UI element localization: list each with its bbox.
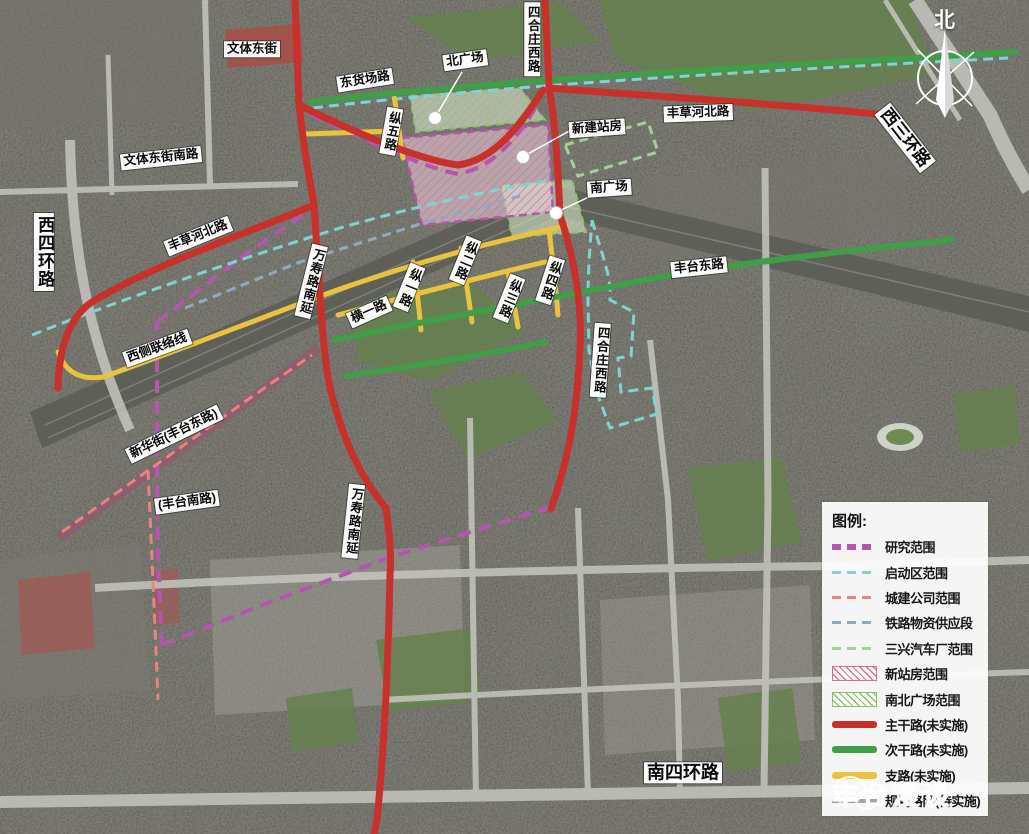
legend-item-label: 次干路(未实施) [885,740,968,759]
north-label: 北 [934,4,955,34]
legend-title: 图例: [832,510,979,531]
legend-item: 南北广场范围 [832,686,979,711]
legend-item: 三兴汽车厂范围 [832,636,979,661]
planning-map: 文体东街文体东街南路东货场路北广场四合庄西路新建站房南广场丰草河北路西三环路西四… [0,0,1029,834]
legend-panel: 图例: 研究范围启动区范围城建公司范围铁路物资供应段三兴汽车厂范围新站房范围南北… [822,502,988,816]
legend-swatch [832,721,877,728]
legend-swatch [832,571,877,574]
legend-item-label: 研究范围 [885,537,935,556]
legend-swatch [832,692,877,707]
legend-item: 铁路物资供应段 [832,610,979,635]
legend-swatch [832,746,877,753]
legend-item-label: 主干路(未实施) [885,715,968,734]
legend-item: 次干路(未实施) [832,737,979,762]
legend-swatch [832,666,877,681]
legend-item-label: 铁路物资供应段 [885,613,973,632]
legend-swatch [832,596,877,599]
legend-item: 研究范围 [832,534,979,559]
legend-item-label: 启动区范围 [885,563,948,582]
legend-item-label: 三兴汽车厂范围 [885,639,973,658]
legend-item: 主干路(未实施) [832,712,979,737]
legend-rows: 研究范围启动区范围城建公司范围铁路物资供应段三兴汽车厂范围新站房范围南北广场范围… [832,534,979,813]
legend-swatch [832,621,877,624]
legend-swatch [832,544,877,550]
wechat-logo-icon [832,774,880,816]
legend-item-label: 新站房范围 [885,664,948,683]
legend-item-label: 南北广场范围 [885,690,960,709]
watermark: 丰台漫谈 [832,774,952,813]
legend-swatch [832,647,877,650]
legend-item: 启动区范围 [832,559,979,584]
legend-item-label: 城建公司范围 [885,588,960,607]
legend-item: 城建公司范围 [832,585,979,610]
legend-item: 新站房范围 [832,661,979,686]
